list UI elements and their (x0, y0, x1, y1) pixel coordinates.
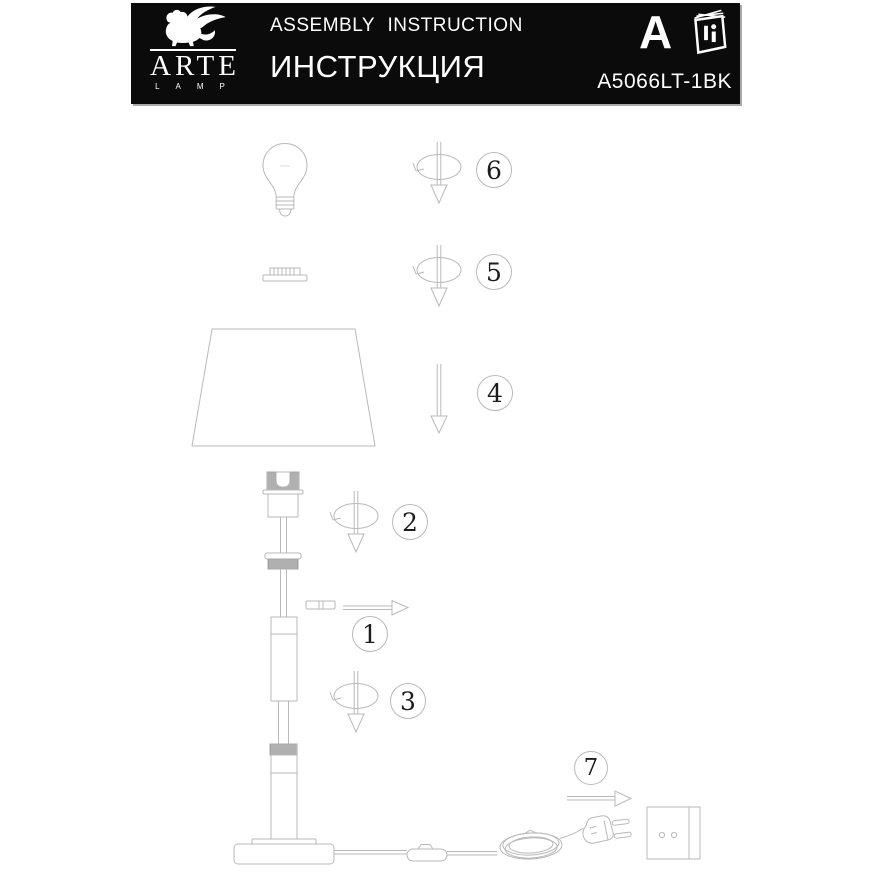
retainer-ring-drawing (263, 268, 307, 281)
cord-coil-drawing (499, 827, 584, 860)
step-number: 4 (487, 379, 503, 408)
right-arrow-icon-1 (343, 601, 408, 616)
right-arrow-icon-7 (567, 791, 631, 806)
down-arrow-icon-4 (431, 364, 447, 433)
cord-switch-drawing (334, 845, 497, 862)
rotate-arrow-icon-5 (413, 245, 461, 306)
step-number: 7 (584, 755, 599, 781)
step-badge-7: 7 (574, 751, 608, 785)
lampshade-drawing (192, 329, 375, 446)
step-badge-3: 3 (390, 683, 426, 719)
coupler-drawing (306, 601, 335, 609)
assembly-diagram (0, 0, 875, 875)
rotate-arrow-icon-6 (413, 142, 461, 203)
rotate-arrow-icon-3 (330, 671, 378, 732)
step-number: 3 (400, 687, 416, 716)
socket-drawing (263, 472, 303, 617)
step-badge-1: 1 (352, 616, 388, 652)
rotate-arrow-icon-2 (330, 491, 378, 552)
step-badge-4: 4 (477, 375, 513, 411)
lamp-body-drawing (234, 617, 334, 864)
step-number: 1 (362, 620, 378, 649)
bulb-drawing (263, 144, 307, 217)
step-number: 2 (402, 508, 418, 537)
step-number: 5 (486, 258, 502, 287)
step-badge-2: 2 (392, 504, 428, 540)
step-badge-5: 5 (476, 254, 512, 290)
plug-drawing (583, 816, 631, 844)
outlet-drawing (647, 807, 700, 859)
step-number: 6 (486, 156, 502, 185)
step-badge-6: 6 (476, 152, 512, 188)
